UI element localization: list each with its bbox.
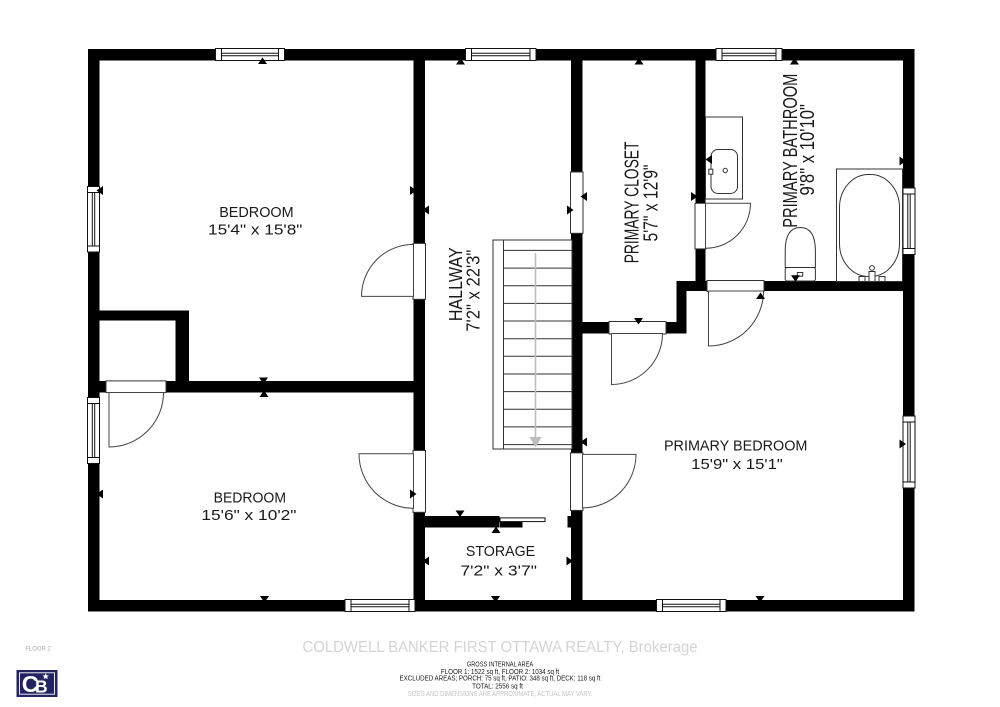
- svg-text:B: B: [35, 677, 48, 697]
- svg-text:9'8" x 10'10": 9'8" x 10'10": [797, 104, 819, 196]
- svg-text:BEDROOM: BEDROOM: [219, 204, 293, 221]
- svg-text:BEDROOM: BEDROOM: [214, 490, 286, 507]
- svg-text:15'6" x 10'2": 15'6" x 10'2": [201, 507, 296, 524]
- svg-text:COLDWELL BANKER FIRST OTTAWA R: COLDWELL BANKER FIRST OTTAWA REALTY, Bro…: [303, 639, 698, 656]
- svg-text:7'2" x 22'3": 7'2" x 22'3": [463, 250, 483, 332]
- svg-text:FLOOR 2: FLOOR 2: [25, 645, 51, 652]
- svg-text:PRIMARY BEDROOM: PRIMARY BEDROOM: [664, 438, 808, 455]
- svg-text:15'9" x 15'1": 15'9" x 15'1": [691, 456, 783, 473]
- svg-text:7'2" x 3'7": 7'2" x 3'7": [460, 563, 537, 580]
- svg-text:5'7" x 12'9": 5'7" x 12'9": [641, 165, 663, 242]
- svg-text:STORAGE: STORAGE: [466, 543, 535, 560]
- svg-text:SIZES AND DIMENSIONS ARE APPRO: SIZES AND DIMENSIONS ARE APPROXIMATE, AC…: [408, 689, 593, 698]
- svg-text:15'4" x 15'8": 15'4" x 15'8": [208, 222, 302, 239]
